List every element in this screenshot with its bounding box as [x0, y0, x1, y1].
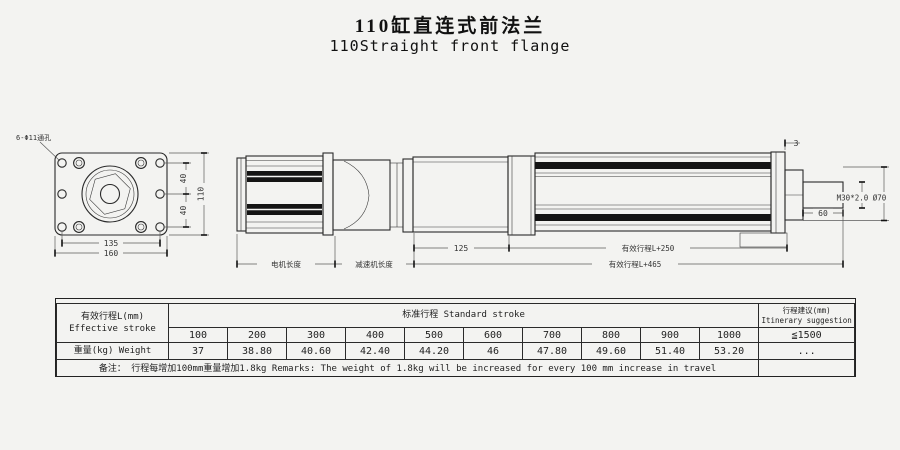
weight-value-cell: 40.60: [287, 343, 346, 360]
stroke-value-cell: 700: [523, 328, 582, 343]
cylinder-body: [535, 153, 771, 231]
flange-front-view: 6-Φ11通孔: [16, 133, 167, 235]
dim-reducer-length: 减速机长度: [355, 259, 393, 269]
dim-stroke-250: 有效行程L+250: [622, 243, 675, 253]
suggestion-header-cell: 行程建议(mm) Itinerary suggestion: [759, 304, 855, 328]
spec-table-frame: 有效行程L(mm) Effective stroke 标准行程 Standard…: [55, 298, 856, 377]
dim-stroke-465: 有效行程L+465: [609, 259, 662, 269]
weight-value-cell: 51.40: [641, 343, 700, 360]
stroke-value-cell: 200: [228, 328, 287, 343]
remarks-cell: 备注： 行程每增加100mm重量增加1.8kg Remarks: The wei…: [57, 360, 759, 376]
remarks-empty-cell: [759, 360, 855, 376]
weight-value-cell: 49.60: [582, 343, 641, 360]
stroke-value-cell: 600: [464, 328, 523, 343]
stroke-value-cell: 300: [287, 328, 346, 343]
dim-40-bottom: 40: [179, 206, 188, 216]
weight-label-cell: 重量(kg) Weight: [57, 343, 169, 360]
weight-value-cell: 53.20: [700, 343, 759, 360]
reducer-section: [333, 159, 413, 232]
weight-value-cell: 42.40: [346, 343, 405, 360]
stroke-value-cell: 800: [582, 328, 641, 343]
dim-60: 60: [818, 209, 828, 218]
technical-drawing: 6-Φ11通孔 40 40 110: [0, 0, 900, 450]
stroke-value-cell: 100: [169, 328, 228, 343]
effective-stroke-label-en: Effective stroke: [57, 323, 168, 335]
dim-motor-length: 电机长度: [271, 259, 301, 269]
effective-stroke-header-cell: 有效行程L(mm) Effective stroke: [57, 304, 169, 343]
suggestion-label-en: Itinerary suggestion: [759, 316, 854, 326]
stroke-value-cell: 400: [346, 328, 405, 343]
weight-value-cell: 46: [464, 343, 523, 360]
stroke-value-cell: 900: [641, 328, 700, 343]
dim-160: 160: [104, 249, 119, 258]
adapter-section: [413, 157, 508, 232]
dim-40-top: 40: [179, 174, 188, 184]
hole-callout-label: 6-Φ11通孔: [16, 133, 51, 142]
suggestion-label-cn: 行程建议(mm): [759, 306, 854, 316]
front-flange-section: [508, 156, 535, 235]
suggestion-value-cell: ≦1500: [759, 328, 855, 343]
weight-value-cell: 47.80: [523, 343, 582, 360]
spec-table: 有效行程L(mm) Effective stroke 标准行程 Standard…: [56, 303, 855, 376]
weight-value-cell: 37: [169, 343, 228, 360]
weight-value-cell: 44.20: [405, 343, 464, 360]
dim-110: 110: [197, 187, 206, 202]
catalog-page: 110缸直连式前法兰 110Straight front flange 6-Φ1…: [0, 0, 900, 450]
dim-125: 125: [454, 244, 469, 253]
stroke-value-cell: 1000: [700, 328, 759, 343]
standard-stroke-header-cell: 标准行程 Standard stroke: [169, 304, 759, 328]
dim-135: 135: [104, 239, 119, 248]
effective-stroke-label-cn: 有效行程L(mm): [57, 311, 168, 323]
weight-suggestion-cell: ...: [759, 343, 855, 360]
motor-section: [237, 153, 333, 235]
stroke-value-cell: 500: [405, 328, 464, 343]
dim-3: 3: [794, 139, 799, 148]
weight-value-cell: 38.80: [228, 343, 287, 360]
dim-thread-label: M30*2.0 Ø70: [837, 194, 887, 203]
